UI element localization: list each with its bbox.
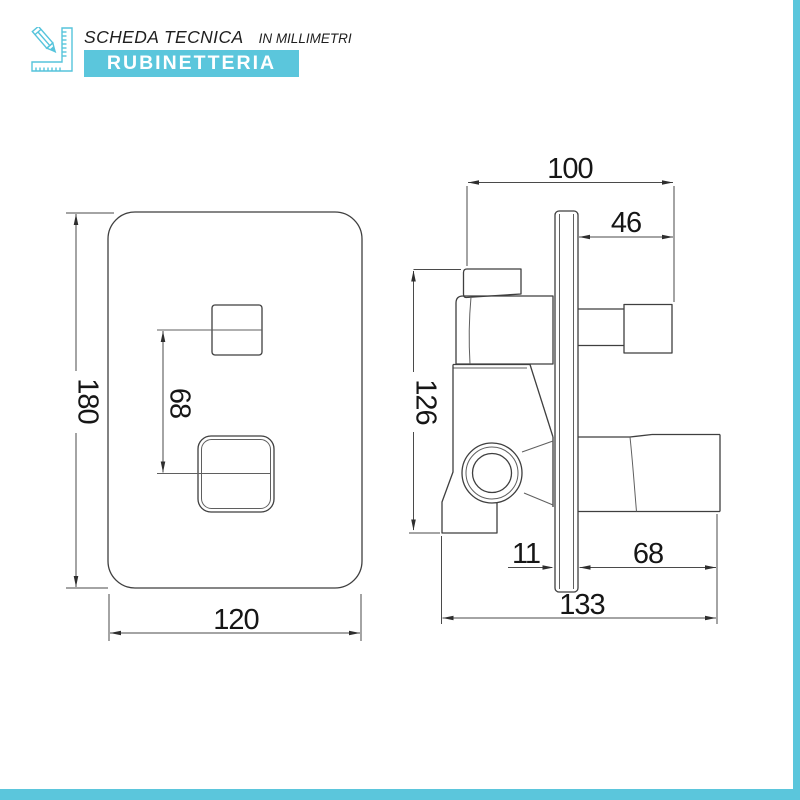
dim-front-width: 120: [109, 594, 361, 641]
dim-label-120: 120: [213, 604, 258, 636]
side-body-slope: [530, 365, 553, 438]
dim-label-133: 133: [559, 589, 604, 621]
dim-label-100: 100: [547, 153, 592, 185]
dim-side-plate-thickness: 11: [508, 538, 554, 570]
dim-label-68-front: 68: [163, 388, 195, 418]
page-border-bottom: [0, 789, 800, 800]
dim-front-height: 180: [66, 213, 114, 588]
side-diverter-knob: [624, 305, 672, 354]
side-body-seam: [469, 297, 471, 364]
dim-label-46: 46: [611, 207, 641, 239]
front-view: 180 68 120: [66, 212, 362, 641]
side-boss-link-top: [522, 441, 553, 452]
side-cartridge-cap: [464, 269, 522, 298]
dim-side-handle-protrusion: 68: [580, 538, 717, 570]
side-view: 100 46 126 11: [409, 153, 720, 624]
dim-label-180: 180: [71, 378, 103, 423]
dim-label-126: 126: [409, 379, 441, 424]
technical-drawing: 180 68 120: [0, 0, 800, 800]
side-outlet-port-outer: [462, 443, 522, 503]
side-lever-handle: [579, 435, 721, 512]
side-wall-plate: [555, 211, 578, 592]
dim-side-total-width: 133: [442, 514, 718, 624]
side-boss-link-bottom: [524, 493, 553, 505]
front-plate-outline: [108, 212, 362, 588]
dim-label-68-side: 68: [633, 538, 663, 570]
dim-side-knob-protrusion: 46: [579, 207, 673, 239]
page-border-right: [793, 0, 800, 800]
dim-side-total-depth: 100: [467, 153, 674, 302]
dim-front-spacing: 68: [161, 331, 196, 473]
dim-label-11: 11: [512, 538, 540, 570]
